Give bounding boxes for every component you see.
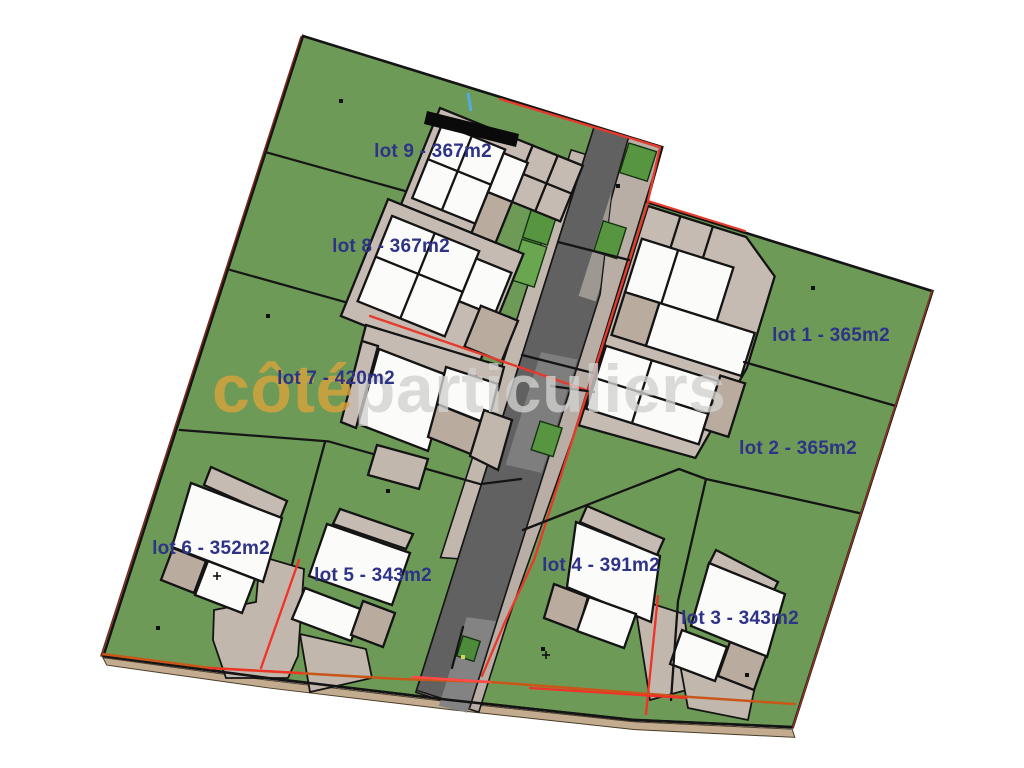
svg-text:lot 3 - 343m2: lot 3 - 343m2	[681, 608, 799, 629]
svg-text:lot 8 - 367m2: lot 8 - 367m2	[332, 236, 450, 257]
svg-text:lot 1 - 365m2: lot 1 - 365m2	[772, 325, 890, 346]
svg-text:lot 5 - 343m2: lot 5 - 343m2	[314, 565, 432, 586]
svg-text:lot 9 - 367m2: lot 9 - 367m2	[374, 141, 492, 162]
svg-text:lot 2 - 365m2: lot 2 - 365m2	[739, 438, 857, 459]
svg-text:côtéparticuliers: côtéparticuliers	[212, 351, 726, 427]
svg-text:lot 7 - 420m2: lot 7 - 420m2	[277, 368, 395, 389]
svg-text:lot 4 - 391m2: lot 4 - 391m2	[542, 555, 660, 576]
svg-text:lot 6 - 352m2: lot 6 - 352m2	[152, 538, 270, 559]
